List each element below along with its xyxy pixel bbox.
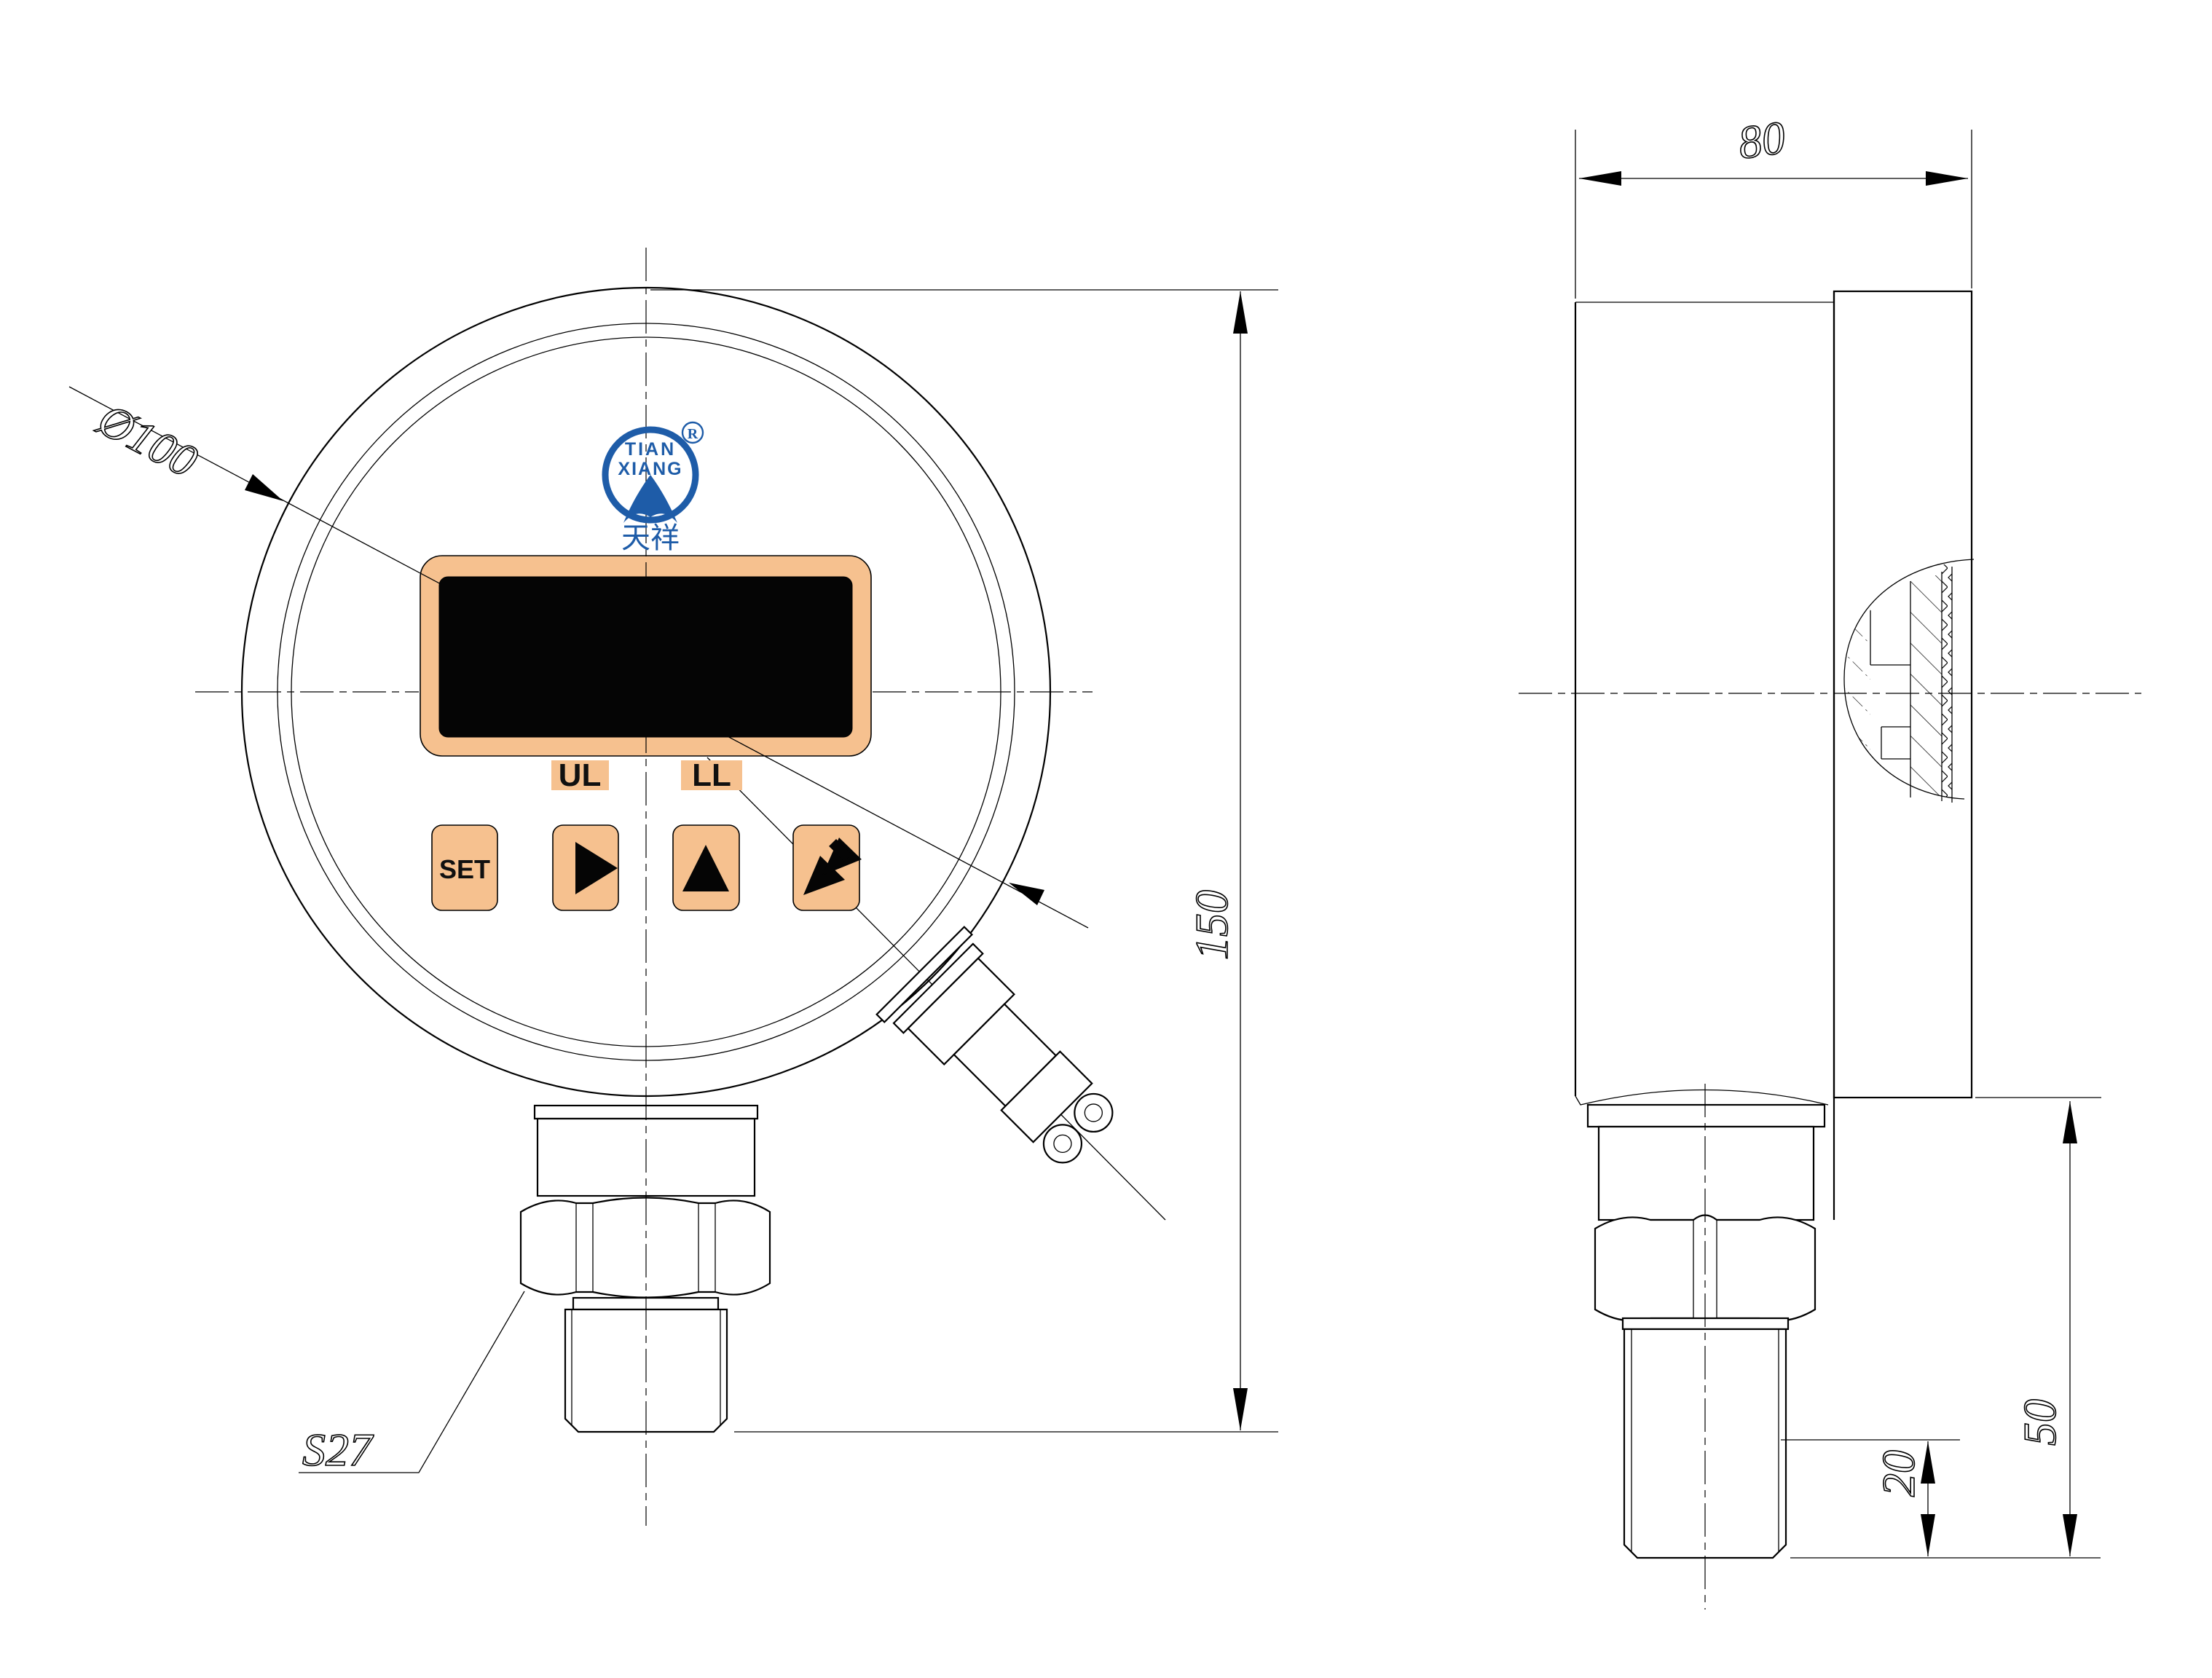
sensor-dome bbox=[1841, 559, 1974, 805]
wrench-size-text: S27 bbox=[302, 1424, 374, 1476]
side-view: 80 50 20 bbox=[1519, 111, 2141, 1610]
height-dim-text: 150 bbox=[1186, 890, 1237, 960]
wrench-size-label: S27 bbox=[299, 1291, 524, 1476]
front-view: UL LL SET TIAN XIANG 天祥 R bbox=[69, 248, 1278, 1526]
logo-line1: TIAN bbox=[625, 439, 676, 460]
registered-mark: R bbox=[688, 426, 698, 442]
logo-mountain bbox=[623, 475, 677, 523]
diameter-dim-text: Ø100 bbox=[90, 393, 206, 487]
process-connection-side bbox=[1588, 1105, 1825, 1558]
lower-height-dim-text: 50 bbox=[2014, 1399, 2066, 1446]
lcd-screen bbox=[439, 577, 852, 737]
ll-label: LL bbox=[692, 757, 731, 793]
keypad: SET bbox=[432, 825, 862, 910]
ul-label: UL bbox=[559, 757, 602, 793]
set-button-label: SET bbox=[439, 854, 490, 884]
process-connection-front bbox=[521, 1106, 770, 1432]
thread-length-dim-text: 20 bbox=[1873, 1450, 1924, 1497]
hex-nut-front bbox=[521, 1198, 770, 1298]
drawing-canvas: UL LL SET TIAN XIANG 天祥 R bbox=[0, 0, 2212, 1678]
brand-logo: TIAN XIANG 天祥 R bbox=[605, 422, 703, 554]
lower-height-dimension: 50 bbox=[1790, 1098, 2101, 1558]
logo-chinese: 天祥 bbox=[621, 521, 680, 554]
bezel-bottom-arc bbox=[1575, 1090, 1828, 1106]
depth-dimension: 80 bbox=[1575, 111, 1972, 299]
electrical-connector bbox=[877, 927, 1135, 1186]
depth-dim-text: 80 bbox=[1735, 111, 1788, 169]
setpoint-labels: UL LL bbox=[551, 757, 742, 793]
thread-length-dimension: 20 bbox=[1781, 1440, 1960, 1556]
